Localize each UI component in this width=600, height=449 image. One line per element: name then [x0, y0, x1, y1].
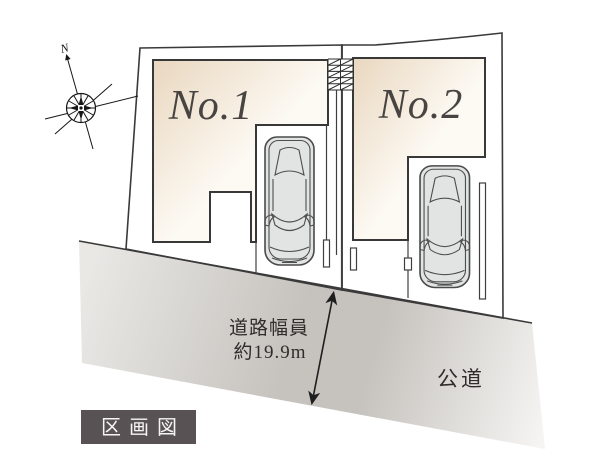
north-label: N [58, 40, 71, 56]
lot-no1-label: No.1 [168, 83, 254, 129]
lot-no2-parking-right-wall [480, 183, 486, 299]
lot-no2-fence-post-left [351, 248, 357, 270]
lot-no2-label: No.2 [378, 82, 464, 128]
stair-hatch-symbol [328, 59, 353, 90]
car-body [265, 137, 314, 265]
lot-no1-fence-post [324, 240, 330, 267]
car-no1 [265, 137, 314, 265]
road-width-caption-line2: 約19.9m [233, 341, 306, 363]
lot-no2-fence-post-mid [405, 258, 412, 270]
title-badge: 区画図 [81, 410, 196, 444]
plot-map-svg: N No.1 No.2 道路幅員 約19.9m 公道 区画図 [0, 0, 600, 449]
plot-map-canvas: N No.1 No.2 道路幅員 約19.9m 公道 区画図 [0, 0, 600, 449]
road-width-caption-line1: 道路幅員 [229, 317, 309, 339]
title-badge-label: 区画図 [101, 417, 185, 439]
public-road-label: 公道 [437, 367, 485, 391]
compass-rose: N [45, 40, 138, 149]
car-no2 [420, 166, 470, 288]
car-body [420, 166, 469, 288]
